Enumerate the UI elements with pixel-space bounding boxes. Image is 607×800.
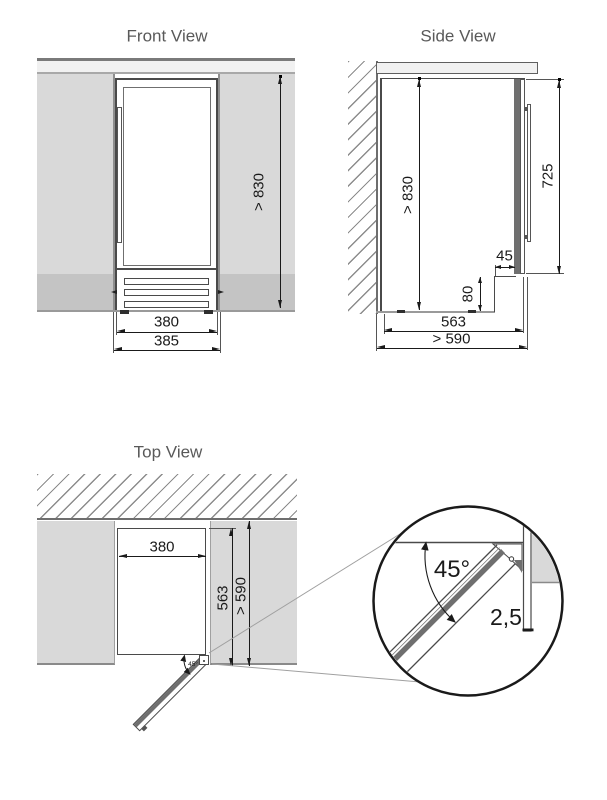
detail-hinge-pin (509, 557, 513, 561)
side-floor-line (376, 311, 495, 314)
top-cabinet-left (37, 521, 115, 666)
dim-arrow (417, 302, 421, 310)
recess-horizontal-line (494, 276, 516, 278)
detail-gap-tick (523, 629, 534, 632)
detail-gap-label: 2,5 (490, 604, 522, 630)
top-total-depth-dim-label: > 590 (233, 577, 248, 615)
recess-vertical-line (494, 276, 496, 312)
dim-arrow (212, 347, 220, 351)
door-glass-frame (123, 87, 211, 266)
handle-mount-top (525, 107, 528, 111)
handle-mount-bottom (525, 235, 528, 239)
front-height-dim-label: > 830 (252, 173, 267, 211)
cabinet-back-line (380, 78, 382, 311)
front-countertop (37, 58, 295, 74)
installation-diagram: Front View > 830 380 385 Side View (0, 0, 607, 800)
dim-arrow (117, 329, 125, 333)
total-depth-dim-label: > 590 (433, 332, 471, 347)
door-handle-side (527, 104, 532, 242)
dim-arrow (519, 345, 527, 349)
door-height-dim-line (559, 79, 560, 274)
dim-arrow (229, 658, 233, 666)
detail-view-circle: 45° 2,5 (370, 503, 570, 703)
top-wall-hatched (37, 474, 297, 520)
appliance-foot (120, 310, 129, 314)
open-door-handle-nub (141, 725, 147, 731)
cabinet-top-line (380, 78, 525, 80)
dim-arrow (247, 658, 251, 666)
recess-depth-dim-label: 45 (496, 248, 513, 263)
dim-arrow (119, 554, 127, 558)
dim-arrow (377, 345, 385, 349)
side-height-dim-line (419, 79, 420, 310)
front-width-inner-dim-label: 380 (154, 314, 179, 329)
dim-arrow (209, 329, 217, 333)
dim-arrow (384, 328, 392, 332)
side-view-title: Side View (420, 28, 495, 45)
side-wall-hatched (348, 61, 378, 314)
side-height-dim-label: > 830 (400, 176, 415, 214)
dim-arrow (509, 265, 515, 269)
vent-width-arrow-right (218, 290, 224, 294)
recess-height-dim-label: 80 (460, 285, 475, 302)
detail-angle-label: 45° (434, 556, 470, 583)
dim-arrow (198, 554, 206, 558)
dim-arrow (557, 80, 561, 88)
dim-arrow (417, 79, 421, 87)
detail-gap-strip (524, 527, 532, 632)
hinge-pin (203, 660, 206, 663)
vent-width-arrow-left (111, 290, 117, 294)
dim-arrow (278, 300, 282, 308)
top-depth-dim-label: 563 (215, 585, 230, 610)
vent-slat (124, 301, 209, 308)
extension-line (527, 277, 528, 350)
appliance-foot (397, 310, 405, 313)
detail-circle-outline (374, 507, 563, 696)
front-view-title: Front View (127, 28, 208, 45)
dim-arrow (278, 76, 282, 84)
top-view-title: Top View (134, 444, 203, 461)
dim-arrow (229, 528, 233, 536)
dim-arrow (247, 521, 251, 529)
side-countertop (376, 62, 538, 75)
dim-arrow (114, 347, 122, 351)
dim-arrow (557, 266, 561, 274)
vent-slat (124, 289, 209, 296)
dim-arrow (515, 328, 523, 332)
door-handle-front (117, 107, 122, 243)
depth-dim-label: 563 (441, 314, 466, 329)
door-height-dim-label: 725 (541, 163, 556, 188)
dim-arrow (495, 265, 501, 269)
top-width-dim-label: 380 (149, 540, 174, 555)
vent-slat (124, 278, 209, 285)
dim-arrow (478, 305, 482, 311)
total-depth-dim-line (377, 348, 528, 349)
appliance-foot (204, 310, 213, 314)
appliance-foot (468, 310, 476, 313)
front-width-outer-dim-label: 385 (154, 333, 179, 348)
extension-line (523, 277, 524, 333)
open-door-panel (134, 658, 203, 727)
open-door (133, 656, 208, 731)
top-width-dim-line (119, 556, 206, 557)
front-height-dim-line (280, 76, 281, 308)
front-width-outer-dim-line (114, 350, 221, 351)
dim-arrow (478, 277, 482, 283)
